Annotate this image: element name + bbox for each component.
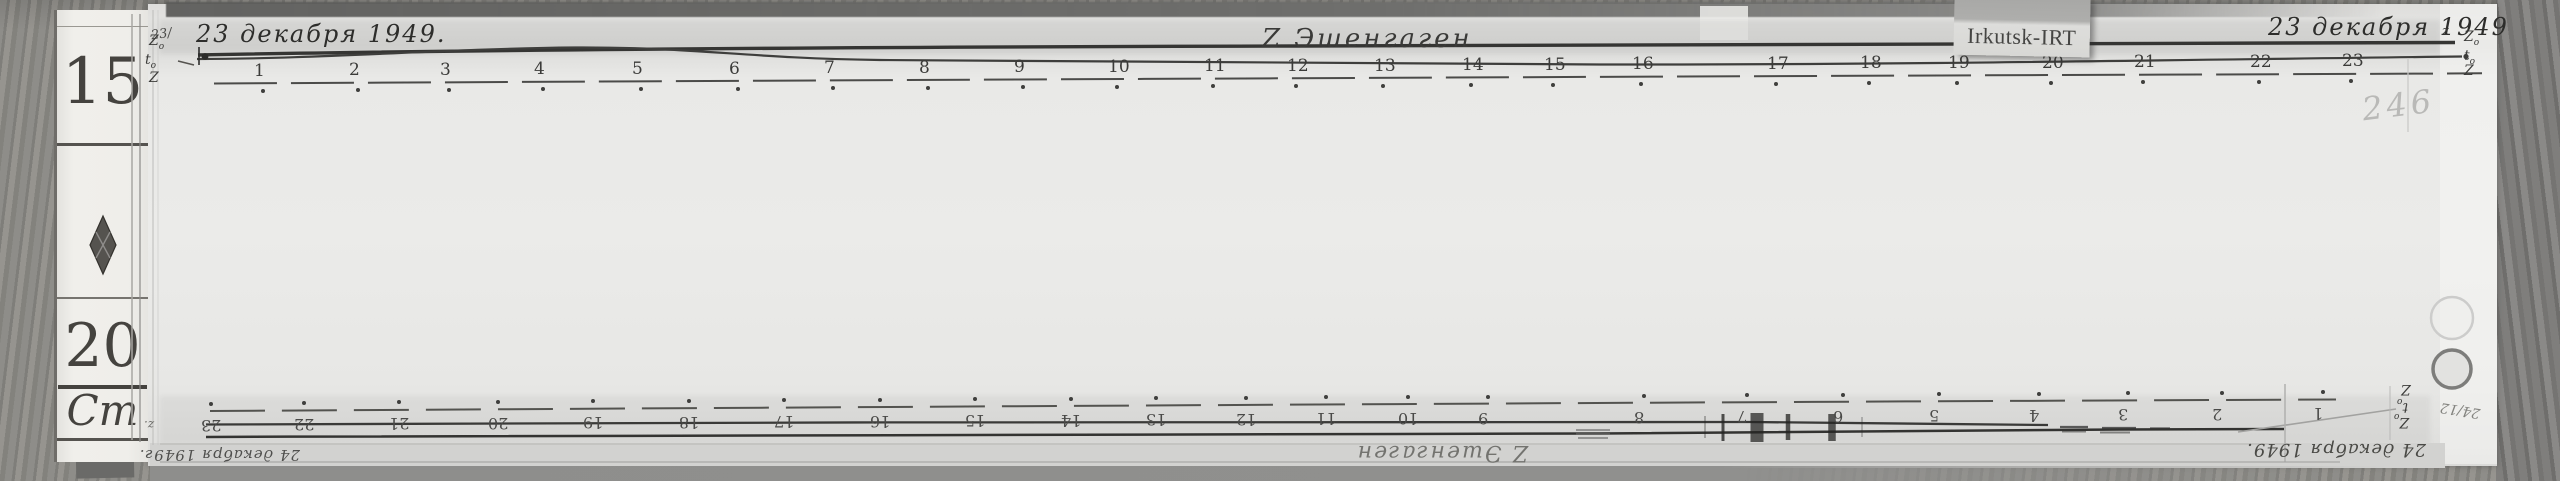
observatory-tag-label: Irkutsk-IRT xyxy=(1967,23,2077,51)
bottom-upper-trace xyxy=(206,422,2048,425)
instrument-title-top: Z Эшенгаген xyxy=(1262,24,1473,54)
hour-scale-line-top xyxy=(214,73,2482,83)
margin-note-top-left: 23/ xyxy=(150,26,173,44)
punch-circle-dark xyxy=(2433,350,2471,388)
date-top-left: 23 декабря 1949. xyxy=(196,20,446,48)
bottom-trace-triple-dash xyxy=(1576,430,1610,438)
observatory-tag: Irkutsk-IRT xyxy=(1953,0,2090,57)
trace-overlay xyxy=(0,0,2560,481)
instrument-title-bottom-rotated: Z Эшенгаген xyxy=(1228,440,1528,465)
bottom-lower-trace xyxy=(206,429,2284,437)
punch-circle-faint xyxy=(2431,297,2473,339)
to-label-arrow xyxy=(178,61,194,65)
date-top-right: 23 декабря 1949 xyxy=(2268,13,2509,41)
bottom-trace-dash-echo xyxy=(2062,432,2130,433)
date-bottom-right-rotated: 24 декабря 1949. xyxy=(2198,439,2426,460)
corner-note-bottom-left: z. xyxy=(144,418,154,432)
hour-scale-line-bottom xyxy=(210,400,2336,412)
date-top-right-subscript: z xyxy=(2442,24,2449,39)
bottom-end-diagonal xyxy=(2238,409,2396,432)
scanned-magnetogram: 15 20 Cm xyxy=(0,0,2560,481)
trace-end-dot xyxy=(2463,54,2468,59)
date-bottom-left-rotated: 24 декабря 1949г. xyxy=(132,446,300,464)
trace-start-blob xyxy=(202,53,209,60)
